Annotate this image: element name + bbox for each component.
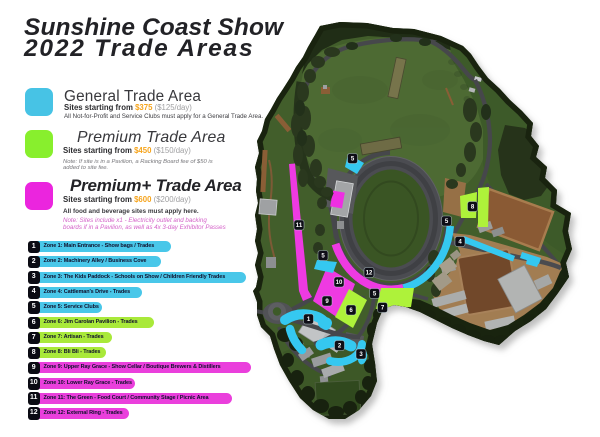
svg-text:12: 12 — [366, 270, 373, 277]
svg-text:10: 10 — [336, 279, 343, 286]
svg-text:11: 11 — [296, 222, 303, 229]
